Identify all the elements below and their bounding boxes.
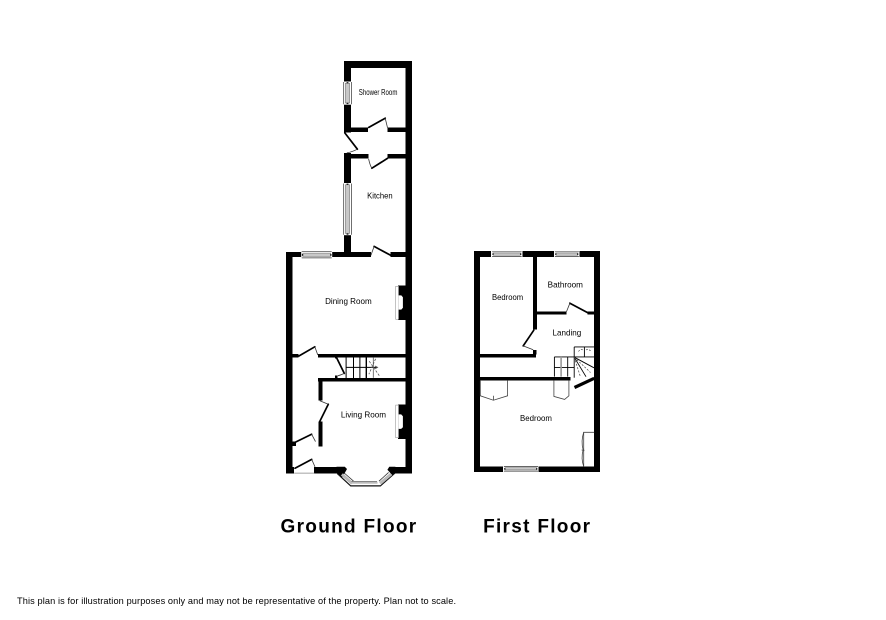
svg-text:This plan is for illustration: This plan is for illustration purposes o… [17,596,456,606]
svg-text:First Floor: First Floor [483,517,591,538]
svg-text:Ground Floor: Ground Floor [281,517,418,538]
svg-text:Bedroom: Bedroom [520,414,552,423]
svg-text:Living Room: Living Room [341,411,386,420]
svg-text:Landing: Landing [553,328,582,337]
svg-text:Dining Room: Dining Room [325,297,372,306]
svg-text:Bathroom: Bathroom [548,281,584,290]
svg-text:Kitchen: Kitchen [367,192,393,201]
svg-text:Shower Room: Shower Room [359,88,398,97]
svg-text:Bedroom: Bedroom [492,293,523,302]
